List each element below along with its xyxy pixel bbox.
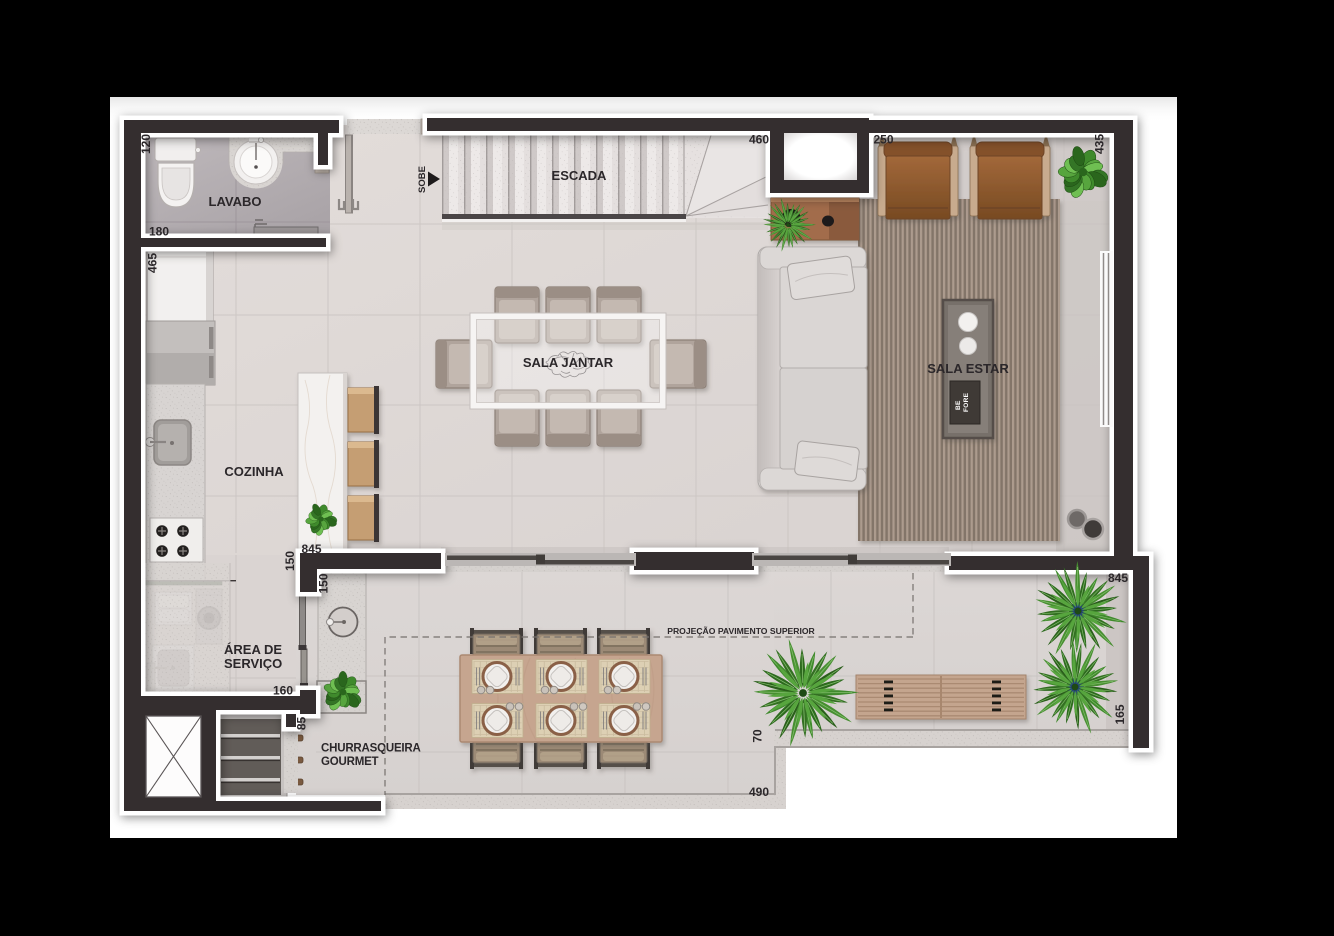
svg-text:SALA ESTAR: SALA ESTAR (927, 361, 1009, 376)
svg-text:COZINHA: COZINHA (224, 464, 284, 479)
svg-text:165: 165 (1113, 704, 1127, 724)
svg-text:SOBE: SOBE (417, 166, 428, 193)
svg-text:ESCADA: ESCADA (552, 168, 608, 183)
svg-text:70: 70 (751, 729, 765, 743)
svg-text:150: 150 (283, 551, 297, 571)
svg-text:845: 845 (301, 542, 321, 556)
svg-text:FORE: FORE (963, 392, 970, 412)
svg-text:BE: BE (955, 400, 962, 410)
svg-text:250: 250 (873, 133, 893, 147)
svg-text:435: 435 (1093, 134, 1107, 154)
svg-text:465: 465 (146, 253, 160, 273)
svg-text:LAVABO: LAVABO (209, 194, 262, 209)
svg-text:160: 160 (273, 684, 293, 698)
svg-text:SERVIÇO: SERVIÇO (224, 656, 282, 671)
svg-text:SALA JANTAR: SALA JANTAR (523, 355, 614, 370)
svg-text:85: 85 (295, 717, 309, 731)
svg-text:120: 120 (139, 134, 153, 154)
svg-text:460: 460 (749, 133, 769, 147)
svg-text:CHURRASQUEIRA: CHURRASQUEIRA (321, 743, 421, 755)
svg-text:180: 180 (149, 225, 169, 239)
svg-text:ÁREA DE: ÁREA DE (224, 642, 282, 657)
svg-text:PROJEÇÃO PAVIMENTO SUPERIOR: PROJEÇÃO PAVIMENTO SUPERIOR (667, 626, 815, 636)
svg-text:GOURMET: GOURMET (321, 756, 379, 768)
svg-text:845: 845 (1108, 571, 1128, 585)
svg-text:150: 150 (317, 573, 331, 593)
svg-text:490: 490 (749, 785, 769, 799)
